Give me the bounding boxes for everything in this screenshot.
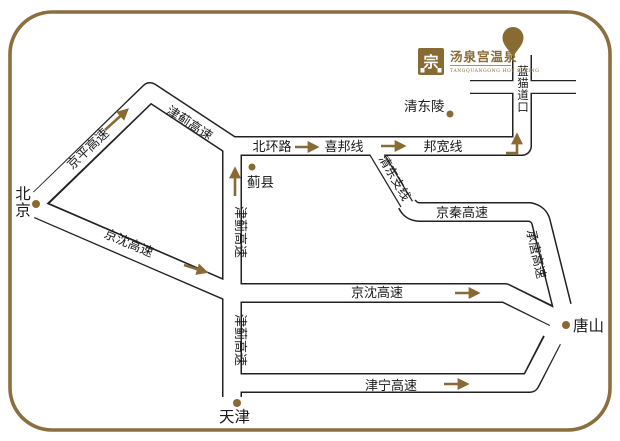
hotel-location-map: 京平高速 津蓟高速 津蓟高速 津蓟高速 北环路 喜邦线 邦宽线 清东支线 京秦高… (0, 0, 620, 441)
city-label-tangshan: 唐山 (573, 317, 604, 335)
city-dot-tangshan (562, 321, 570, 329)
city-dot-beijing (32, 200, 40, 208)
brand-seal-mark-right (438, 68, 442, 73)
town-dot-jixian (249, 164, 256, 171)
city-label-beijing: 北京 (15, 185, 31, 219)
road-label-jinning: 津宁高速 (365, 378, 417, 394)
brand-seal-mark-left (421, 68, 425, 73)
road-surfaces (35, 51, 580, 401)
map-canvas: 京平高速 津蓟高速 津蓟高速 津蓟高速 北环路 喜邦线 邦宽线 清东支线 京秦高… (0, 0, 620, 441)
brand-seal-character: 宗 (423, 53, 438, 71)
city-dot-tianjin (233, 399, 241, 407)
brand-name: 汤泉宫温泉 (450, 49, 518, 64)
road-label-xibang: 喜邦线 (324, 140, 363, 155)
poi-label-qingdongling: 清东陵 (404, 99, 445, 115)
town-label-jixian: 蓟县 (247, 175, 274, 191)
road-label-beihuan: 北环路 (252, 139, 291, 155)
road-label-jinji-vertical-upper: 津蓟高速 (232, 206, 248, 258)
city-label-tianjin: 天津 (219, 408, 250, 426)
road-jinning-surface (232, 337, 554, 383)
brand-name-en: TANGQUANGONG HOT SPRING (450, 68, 539, 74)
road-label-jingqin: 京秦高速 (436, 205, 488, 221)
poi-dot-qingdongling (447, 111, 454, 118)
road-label-jinji-vertical-lower: 津蓟高速 (232, 314, 248, 366)
road-casings (38, 55, 576, 397)
road-label-jingshen-horizontal: 京沈高速 (351, 285, 403, 301)
road-label-bangkuan: 邦宽线 (423, 139, 462, 155)
